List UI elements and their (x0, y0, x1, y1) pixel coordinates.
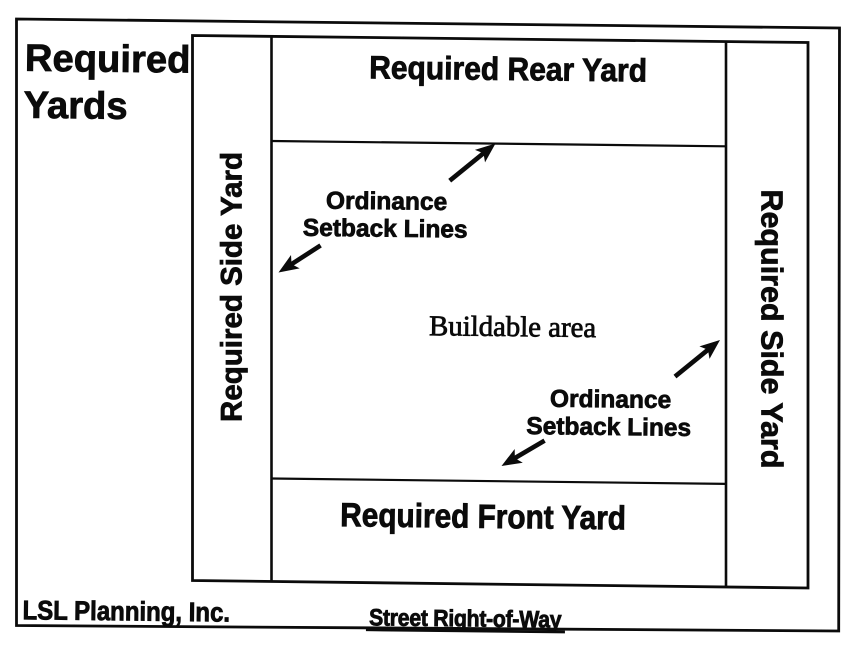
svg-text:Setback Lines: Setback Lines (303, 215, 468, 244)
svg-text:Yards: Yards (23, 84, 128, 128)
svg-text:Street Right-of-Way: Street Right-of-Way (369, 604, 562, 632)
svg-text:Buildable area: Buildable area (429, 310, 597, 344)
svg-text:Required Side Yard: Required Side Yard (755, 189, 789, 468)
svg-text:LSL Planning, Inc.: LSL Planning, Inc. (22, 596, 230, 628)
svg-text:Required Front Yard: Required Front Yard (340, 496, 626, 537)
svg-text:Ordinance: Ordinance (326, 188, 447, 216)
svg-text:Required: Required (25, 37, 191, 82)
svg-text:Required Side Yard: Required Side Yard (216, 152, 249, 422)
svg-text:Ordinance: Ordinance (550, 386, 671, 414)
svg-text:Required Rear Yard: Required Rear Yard (369, 49, 647, 88)
svg-text:Setback Lines: Setback Lines (526, 413, 691, 442)
